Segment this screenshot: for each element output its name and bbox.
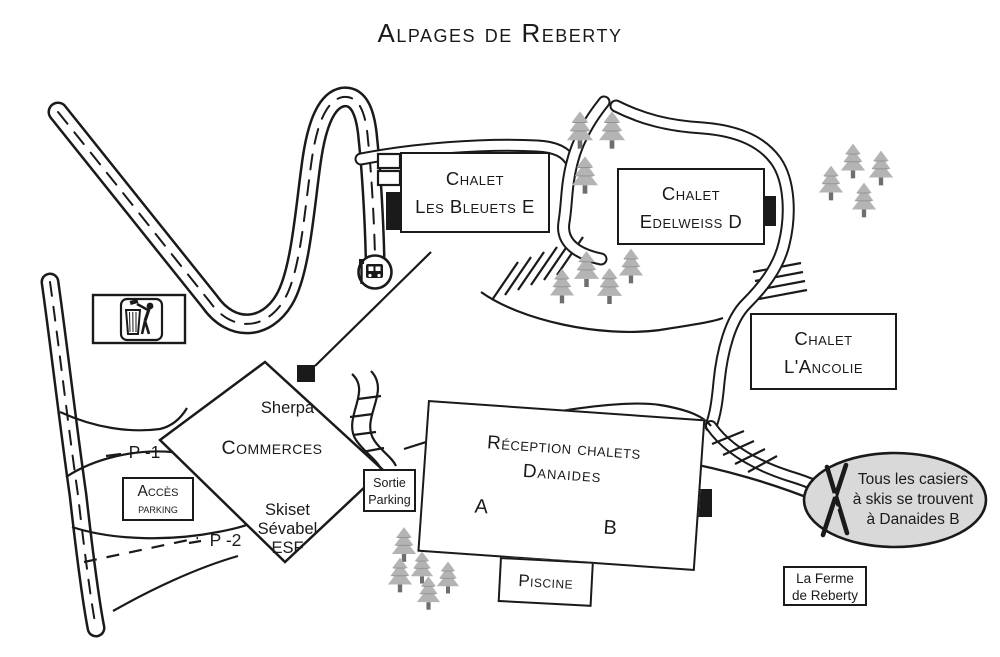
fir-tree-icon xyxy=(819,166,843,201)
fir-tree-icon xyxy=(841,144,865,179)
reception-wing-a: A xyxy=(474,496,489,520)
note-line2: à skis se trouvent xyxy=(848,490,978,510)
fir-tree-icon xyxy=(388,558,412,593)
sortie-line1: Sortie xyxy=(365,475,414,492)
acces-parking-box: Accès parking xyxy=(122,477,194,521)
fir-tree-icon xyxy=(619,249,643,284)
note-bubble-text: Tous les casiers à skis se trouvent à Da… xyxy=(848,470,978,529)
parking-level-p1: P -1 xyxy=(122,442,167,463)
ferme-line1: La Ferme xyxy=(785,571,865,588)
bleuets-entrance-marker xyxy=(386,192,400,230)
note-line3: à Danaides B xyxy=(848,510,978,530)
ferme-line2: de Reberty xyxy=(785,588,865,605)
chalet-edelweiss-box: Chalet Edelweiss D xyxy=(617,168,765,245)
piscine-box: Piscine xyxy=(498,557,594,607)
fir-tree-icon xyxy=(550,269,574,304)
parking-spot-rectangles xyxy=(378,154,400,185)
reception-wing-b: B xyxy=(603,517,618,541)
fir-tree-icon xyxy=(392,527,416,562)
chalet-bleuets-line1: Chalet xyxy=(402,165,548,193)
chalet-edelweiss-line2: Edelweiss D xyxy=(619,208,763,236)
ferme-reberty-box: La Ferme de Reberty xyxy=(783,566,867,606)
sortie-line2: Parking xyxy=(365,492,414,509)
note-line1: Tous les casiers xyxy=(848,470,978,490)
sortie-parking-box: Sortie Parking xyxy=(363,469,416,512)
acces-line1: Accès xyxy=(124,483,192,501)
shop-label-sevabel: Sévabel xyxy=(240,520,335,539)
commerces-entrance-marker xyxy=(297,365,315,382)
bus-stop-icon xyxy=(359,256,392,289)
reception-danaides-box: Réception chalets Danaides A B xyxy=(417,400,705,571)
litter-bin-icon xyxy=(93,295,185,343)
chalet-edelweiss-line1: Chalet xyxy=(619,180,763,208)
fir-tree-icon xyxy=(852,183,876,218)
piscine-label: Piscine xyxy=(518,571,574,593)
fir-tree-icon xyxy=(597,268,622,304)
chalet-ancolie-line2: L'Ancolie xyxy=(752,353,895,381)
shop-label-skiset: Skiset xyxy=(240,501,335,520)
resort-map: Alpages de Reberty Chalet Les Bleuets E … xyxy=(0,0,1000,657)
chalet-ancolie-line1: Chalet xyxy=(752,325,895,353)
parking-level-p2: P -2 xyxy=(203,530,248,551)
commerces-label: Commerces xyxy=(207,437,337,460)
acces-line2: parking xyxy=(124,501,192,516)
chalet-bleuets-box: Chalet Les Bleuets E xyxy=(400,152,550,233)
fir-tree-icon xyxy=(869,151,893,186)
chalet-bleuets-line2: Les Bleuets E xyxy=(402,193,548,221)
shop-label-esf: ESF xyxy=(240,539,335,558)
fir-tree-icon xyxy=(599,111,625,148)
map-title: Alpages de Reberty xyxy=(0,18,1000,49)
shop-label-sherpa: Sherpa xyxy=(240,399,335,418)
chalet-ancolie-box: Chalet L'Ancolie xyxy=(750,313,897,390)
fir-tree-icon xyxy=(437,562,459,594)
